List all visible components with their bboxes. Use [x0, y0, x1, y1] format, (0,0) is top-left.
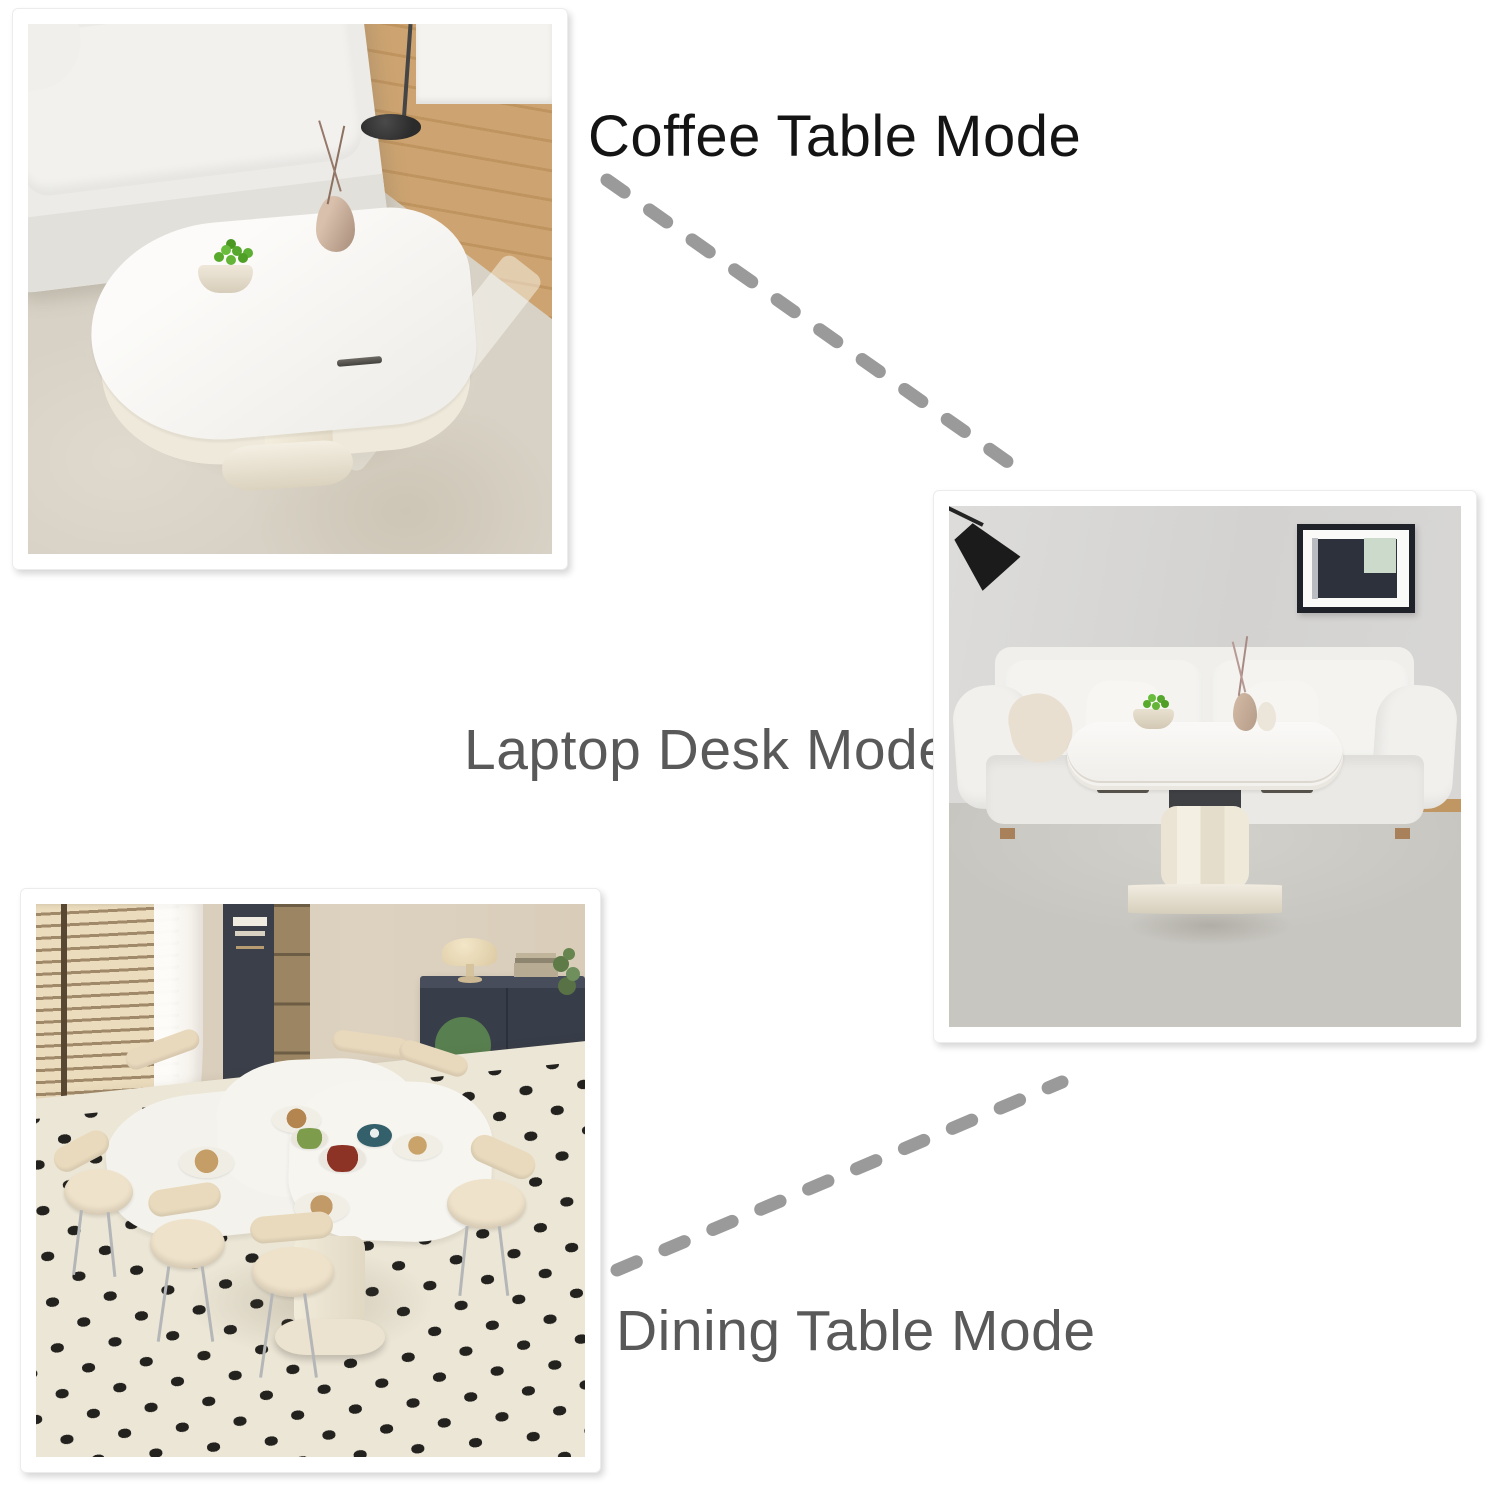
vase: [1233, 693, 1257, 732]
stacked-books: [514, 963, 558, 977]
dining-table-photo: [36, 904, 585, 1457]
plate: [179, 1147, 234, 1178]
chair-backrest: [147, 1180, 223, 1218]
chair-seat: [447, 1179, 526, 1229]
floor-lamp-base: [361, 114, 421, 139]
green-bowl: [291, 1128, 327, 1149]
chair-backrest: [466, 1130, 540, 1183]
green-apples: [1143, 700, 1151, 708]
dining-chair: [124, 1039, 201, 1089]
wall: [416, 24, 552, 104]
dining-chair: [431, 1136, 541, 1302]
shelf-books: [233, 917, 266, 926]
chair-leg: [303, 1294, 318, 1379]
chair-leg: [106, 1212, 116, 1277]
chair-seat: [252, 1247, 333, 1297]
coffee-table-photo: [28, 24, 552, 554]
chair-leg: [72, 1210, 83, 1275]
desk-top: [1067, 722, 1343, 790]
connector-coffee-to-laptop: [607, 180, 1022, 472]
connector-dining-to-laptop: [617, 1082, 1062, 1270]
dining-chair: [52, 1125, 151, 1280]
green-apples: [214, 252, 224, 262]
chair-backrest: [249, 1210, 334, 1244]
desk-base: [1128, 884, 1282, 914]
framed-art-mint-block: [1364, 538, 1396, 573]
berry-bowl: [319, 1145, 366, 1173]
chair-leg: [200, 1266, 214, 1342]
chair-seat: [150, 1219, 225, 1269]
sofa-foot: [1395, 828, 1409, 840]
sofa-foot: [1000, 828, 1014, 840]
framed-art-stripe: [1312, 538, 1318, 599]
coffee-table-mode-label: Coffee Table Mode: [588, 107, 1081, 168]
chair-leg: [260, 1294, 275, 1379]
chair-leg: [157, 1266, 171, 1342]
framed-art: [1297, 524, 1415, 613]
chair-seat: [64, 1169, 133, 1215]
dining-chair: [140, 1186, 239, 1352]
dining-chair: [239, 1214, 349, 1391]
page: { "page": { "background_color": "#ffffff…: [0, 0, 1499, 1499]
dining-table-mode-label: Dining Table Mode: [616, 1302, 1096, 1362]
dining-table-photo-frame: [20, 888, 601, 1473]
coffee-table-photo-frame: [12, 8, 568, 570]
mushroom-lamp-base: [458, 976, 482, 982]
chair-leg: [458, 1226, 468, 1296]
chair-leg: [497, 1226, 508, 1296]
desk-pedestal-column: [1161, 806, 1248, 889]
vase: [1257, 702, 1275, 731]
laptop-desk-mode-label: Laptop Desk Mode: [464, 721, 950, 781]
mushroom-lamp-shade: [442, 938, 497, 966]
laptop-desk-photo-frame: [933, 490, 1477, 1043]
laptop-desk-photo: [949, 506, 1461, 1027]
